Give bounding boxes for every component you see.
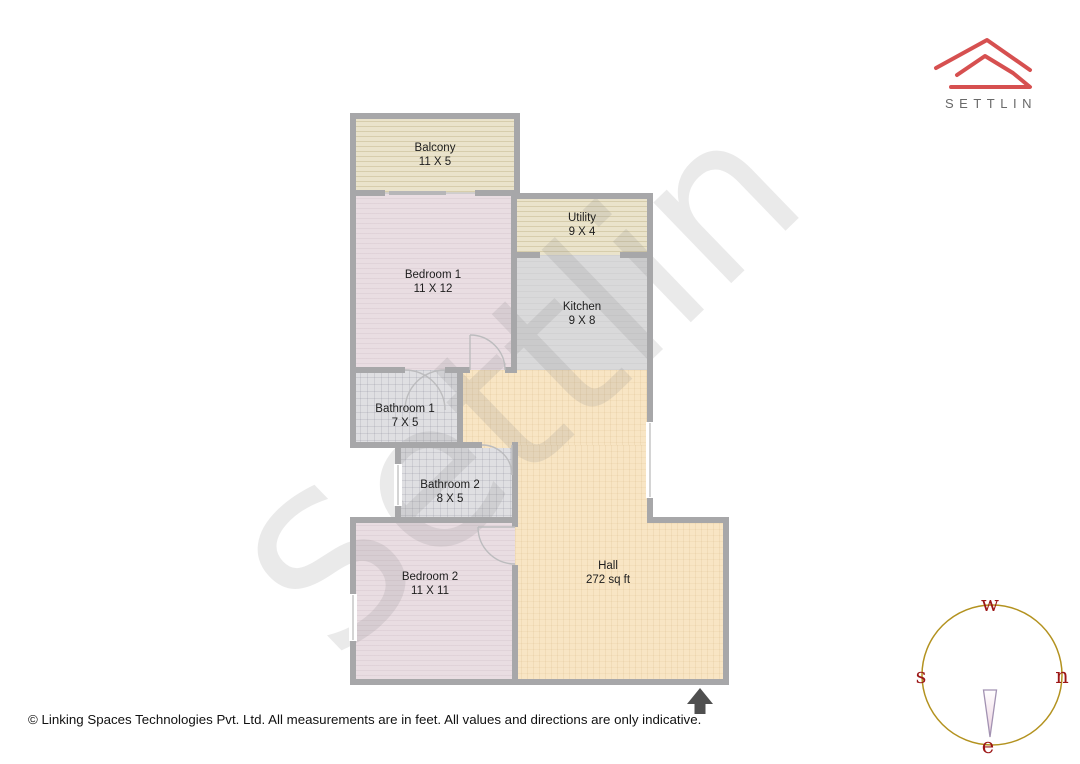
compass-letter-east: e — [982, 734, 994, 758]
room-dims: 11 X 12 — [405, 283, 461, 297]
room-dims: 11 X 5 — [415, 156, 456, 170]
room-name: Kitchen — [563, 301, 601, 315]
room-label-bedroom-1: Bedroom 1 11 X 12 — [405, 269, 461, 296]
room-area-hall — [515, 517, 726, 682]
compass-letter-west: w — [981, 592, 999, 616]
room-dims: 9 X 4 — [568, 226, 596, 240]
entrance-arrow-icon — [687, 688, 713, 714]
room-area-hall — [460, 370, 650, 448]
room-label-utility: Utility 9 X 4 — [568, 212, 596, 239]
room-label-bathroom-2: Bathroom 2 8 X 5 — [420, 479, 479, 506]
room-name: Bedroom 1 — [405, 269, 461, 283]
settlin-logo-icon — [936, 40, 1030, 87]
room-label-bedroom-2: Bedroom 2 11 X 11 — [402, 571, 458, 598]
room-name: Bathroom 2 — [420, 479, 479, 493]
room-dims: 7 X 5 — [375, 417, 434, 431]
floor-plan-page: Settlin — [0, 0, 1080, 764]
room-area-bedroom-2 — [353, 520, 515, 682]
copyright-disclaimer: © Linking Spaces Technologies Pvt. Ltd. … — [28, 712, 701, 727]
room-name: Bathroom 1 — [375, 403, 434, 417]
room-dims: 8 X 5 — [420, 493, 479, 507]
room-label-kitchen: Kitchen 9 X 8 — [563, 301, 601, 328]
room-name: Balcony — [415, 142, 456, 156]
room-area-hall — [515, 445, 650, 520]
room-label-hall: Hall 272 sq ft — [586, 560, 630, 587]
room-dims: 9 X 8 — [563, 315, 601, 329]
settlin-wordmark: SETTLIN — [945, 96, 1037, 111]
compass-rose — [922, 605, 1062, 745]
compass-circle — [922, 605, 1062, 745]
compass-letter-south: s — [916, 664, 927, 688]
room-name: Bedroom 2 — [402, 571, 458, 585]
room-label-bathroom-1: Bathroom 1 7 X 5 — [375, 403, 434, 430]
room-dims: 272 sq ft — [586, 574, 630, 588]
room-name: Hall — [586, 560, 630, 574]
compass-needle-icon — [984, 690, 997, 737]
room-dims: 11 X 11 — [402, 585, 458, 599]
compass-letter-north: n — [1055, 664, 1069, 688]
room-label-balcony: Balcony 11 X 5 — [415, 142, 456, 169]
room-name: Utility — [568, 212, 596, 226]
